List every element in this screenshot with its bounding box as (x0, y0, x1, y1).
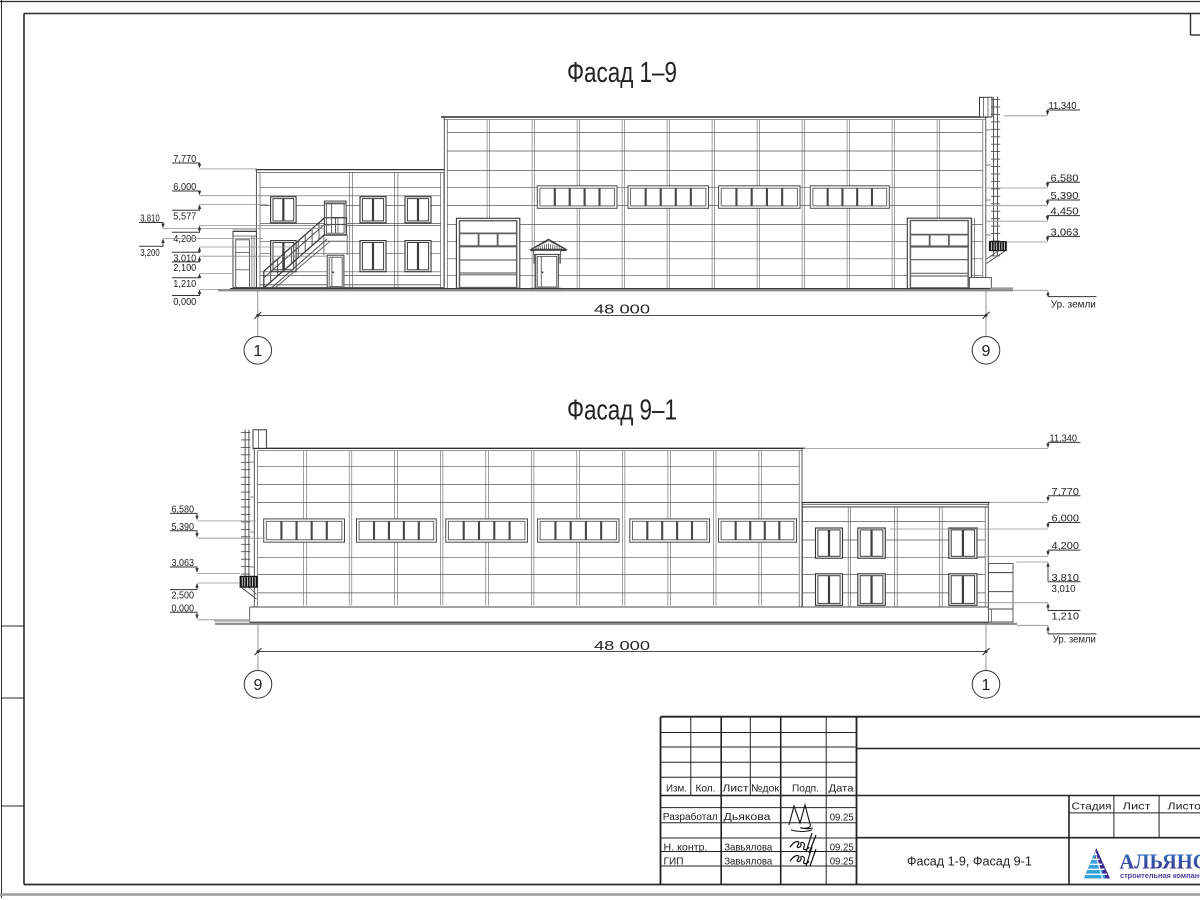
svg-text:5,390: 5,390 (172, 521, 195, 533)
svg-text:Ур. земли: Ур. земли (1053, 635, 1096, 646)
svg-text:1: 1 (253, 343, 262, 360)
svg-text:9: 9 (982, 343, 991, 360)
svg-text:6,580: 6,580 (1051, 172, 1079, 184)
svg-text:Фасад 9–1: Фасад 9–1 (567, 395, 677, 427)
svg-text:0,000: 0,000 (173, 296, 196, 308)
svg-text:Лист: Лист (1123, 801, 1151, 813)
svg-text:11,340: 11,340 (1050, 432, 1078, 444)
svg-text:Дьякова: Дьякова (724, 812, 771, 823)
svg-text:7,770: 7,770 (1052, 486, 1080, 498)
svg-text:48 000: 48 000 (594, 303, 650, 317)
svg-text:48 000: 48 000 (594, 639, 650, 653)
svg-text:Кол.: Кол. (696, 783, 716, 795)
svg-text:Завьялова: Завьялова (724, 843, 772, 854)
svg-text:Дата: Дата (829, 783, 854, 795)
svg-text:Лист: Лист (723, 783, 749, 795)
svg-text:4,200: 4,200 (173, 233, 196, 245)
svg-text:Фасад 1-9, Фасад 9-1: Фасад 1-9, Фасад 9-1 (907, 854, 1032, 869)
svg-text:3,010: 3,010 (1052, 583, 1076, 595)
svg-text:1: 1 (982, 677, 991, 694)
svg-text:09.25: 09.25 (830, 842, 854, 854)
svg-text:6,000: 6,000 (173, 181, 196, 193)
svg-text:2,500: 2,500 (172, 590, 195, 602)
svg-text:Н. контр.: Н. контр. (664, 843, 708, 854)
svg-text:1,210: 1,210 (173, 278, 196, 290)
svg-text:3,200: 3,200 (140, 247, 160, 259)
svg-text:5,577: 5,577 (173, 211, 196, 223)
svg-text:№док: №док (751, 783, 779, 795)
svg-text:строительная компания: строительная компания (1120, 873, 1200, 880)
svg-text:0,000: 0,000 (172, 602, 195, 614)
svg-text:3,063: 3,063 (1051, 227, 1079, 239)
svg-text:4,450: 4,450 (1051, 206, 1079, 218)
svg-text:Изм.: Изм. (666, 783, 687, 795)
svg-text:6,580: 6,580 (172, 503, 195, 515)
svg-text:Разработал: Разработал (663, 812, 718, 823)
svg-text:Завьялова: Завьялова (724, 857, 772, 868)
svg-text:7,770: 7,770 (173, 153, 196, 165)
svg-text:Фасад 1–9: Фасад 1–9 (567, 57, 677, 89)
svg-text:11,340: 11,340 (1049, 100, 1077, 112)
svg-text:4,200: 4,200 (1052, 540, 1080, 552)
svg-text:ГИП: ГИП (664, 857, 684, 868)
svg-text:Ур. земли: Ур. земли (1051, 300, 1096, 311)
svg-text:АЛЬЯНС: АЛЬЯНС (1120, 849, 1200, 873)
svg-text:3,810: 3,810 (140, 213, 160, 225)
svg-text:1,210: 1,210 (1052, 611, 1080, 623)
svg-text:6,000: 6,000 (1052, 513, 1080, 525)
svg-text:5,390: 5,390 (1051, 190, 1079, 202)
svg-text:09.25: 09.25 (830, 856, 854, 868)
svg-text:9: 9 (254, 677, 263, 694)
svg-text:Листов: Листов (1168, 801, 1200, 813)
svg-text:Подп.: Подп. (792, 783, 819, 795)
svg-text:2,100: 2,100 (173, 262, 196, 274)
svg-text:Стадия: Стадия (1072, 801, 1112, 813)
svg-text:09.25: 09.25 (830, 812, 854, 824)
svg-text:3,063: 3,063 (172, 557, 195, 569)
